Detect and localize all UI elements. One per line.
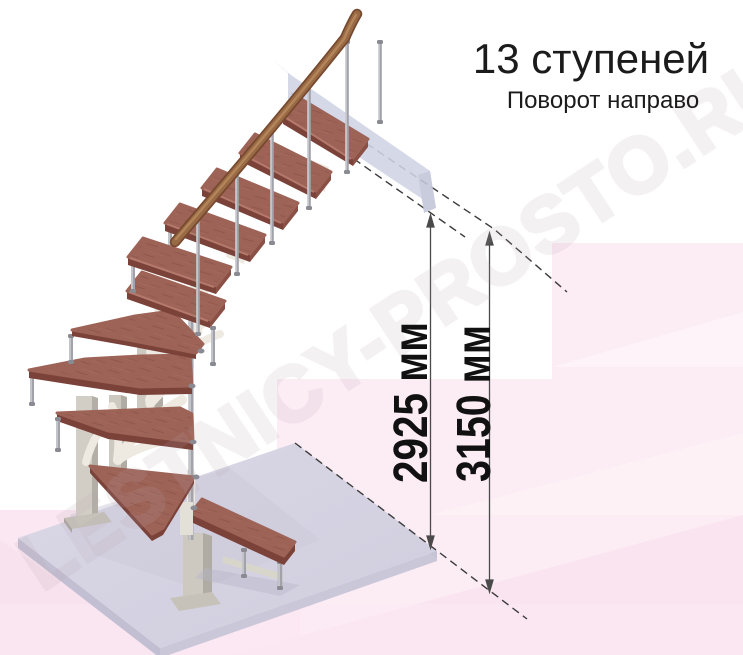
svg-text:3150 мм: 3150 мм — [448, 325, 501, 482]
svg-text:13 ступеней: 13 ступеней — [473, 35, 709, 82]
svg-text:2925 мм: 2925 мм — [385, 322, 438, 483]
svg-text:Поворот направо: Поворот направо — [507, 87, 699, 114]
